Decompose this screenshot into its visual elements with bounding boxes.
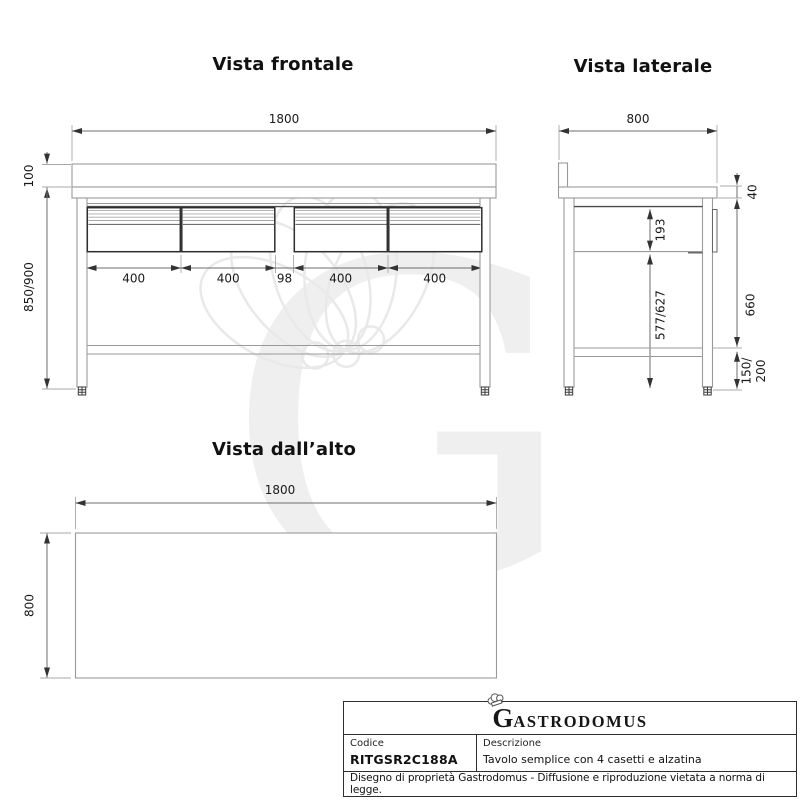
front-view: 1800 100 850/900 400 400 98 400 400 [22, 112, 496, 395]
top-view-title: Vista dall’alto [212, 439, 356, 460]
side-depth-dim: 800 [627, 112, 650, 126]
logo-wordmark: ASTRODOMUS [513, 712, 647, 731]
side-foot-dim-line1: 150/ [740, 357, 754, 385]
top-view-tabletop [76, 533, 497, 678]
front-alzatina-dim: 100 [22, 165, 36, 188]
side-drawer-height-dim: 193 [654, 219, 668, 242]
side-leg-clearance-dim: 577/627 [654, 290, 668, 340]
drawing-sheet: G [0, 0, 800, 800]
code-label: Codice [350, 738, 470, 749]
side-bottom-shelf [574, 348, 703, 357]
drawer-dim-2: 400 [217, 272, 240, 286]
front-height-dim: 850/900 [22, 262, 36, 312]
disclaimer-text: Disegno di proprietà Gastrodomus - Diffu… [350, 772, 790, 796]
description-value: Tavolo semplice con 4 casetti e alzatina [483, 753, 790, 766]
side-tabletop [559, 187, 718, 198]
top-depth-dim: 800 [23, 594, 37, 617]
side-top-thickness-dim: 40 [746, 184, 760, 199]
technical-drawing: 1800 100 850/900 400 400 98 400 400 [0, 0, 800, 800]
side-back-leg [564, 198, 574, 387]
drawer-gap-dim: 98 [277, 272, 292, 286]
side-view: 800 40 660 150/ 200 193 577/627 [559, 112, 769, 395]
title-block-info-row: Codice RITGSR2C188A Descrizione Tavolo s… [344, 735, 796, 772]
chef-hat-icon [485, 692, 507, 710]
side-view-title: Vista laterale [574, 56, 713, 77]
side-drawer-front-edge [713, 210, 718, 253]
side-front-leg [703, 198, 713, 387]
drawer-dim-1: 400 [122, 272, 145, 286]
drawer-dim-3: 400 [329, 272, 352, 286]
side-adjustable-feet [565, 387, 711, 395]
disclaimer-row: Disegno di proprietà Gastrodomus - Diffu… [344, 772, 796, 796]
description-label: Descrizione [483, 738, 790, 749]
front-adjustable-feet [78, 387, 488, 395]
front-alzatina [72, 164, 496, 187]
side-alzatina [559, 163, 568, 187]
code-cell: Codice RITGSR2C188A [344, 735, 477, 771]
side-underside-dim: 660 [744, 294, 758, 317]
top-width-dim: 1800 [265, 483, 296, 497]
front-bottom-shelf [87, 346, 480, 355]
front-view-title: Vista frontale [212, 54, 353, 75]
top-view: 1800 800 [23, 483, 497, 678]
description-cell: Descrizione Tavolo semplice con 4 casett… [477, 735, 796, 771]
front-left-leg [77, 198, 87, 387]
drawer-dim-4: 400 [423, 272, 446, 286]
gastrodomus-logo: GASTRODOMUS [492, 705, 647, 732]
title-block-logo-row: GASTRODOMUS [344, 702, 796, 735]
front-tabletop [72, 187, 496, 198]
code-value: RITGSR2C188A [350, 752, 470, 767]
title-block: GASTRODOMUS Codice RITGSR2C188A Descrizi… [343, 701, 797, 797]
front-width-dim: 1800 [269, 112, 300, 126]
side-foot-dim-line2: 200 [754, 360, 768, 383]
